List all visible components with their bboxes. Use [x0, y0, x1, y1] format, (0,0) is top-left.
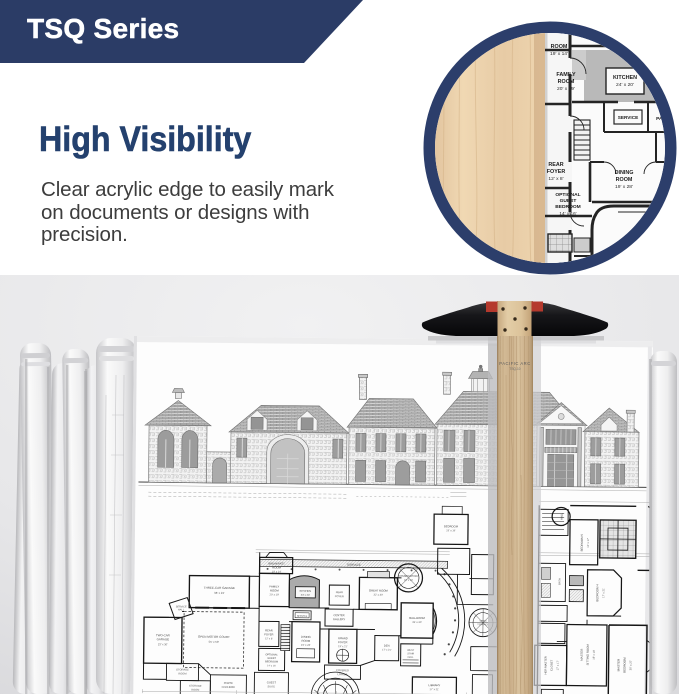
svg-text:FOYER: FOYER	[547, 169, 566, 175]
svg-text:HALL: HALL	[408, 656, 415, 659]
svg-text:19' x 14': 19' x 14'	[550, 51, 568, 57]
svg-text:PORTE: PORTE	[224, 681, 233, 685]
svg-text:TERRACE: TERRACE	[477, 623, 489, 626]
svg-text:BEDROOM: BEDROOM	[555, 204, 581, 210]
svg-text:GREAT ROOM: GREAT ROOM	[369, 588, 389, 592]
svg-text:HER MASTER: HER MASTER	[543, 656, 547, 674]
svg-text:24' x 20': 24' x 20'	[301, 594, 311, 597]
svg-text:FOYER: FOYER	[264, 632, 273, 636]
svg-text:REAR: REAR	[336, 590, 343, 594]
svg-text:MASTER: MASTER	[580, 649, 584, 661]
svg-text:30' x 27': 30' x 27'	[629, 660, 633, 671]
svg-text:55' x 50': 55' x 50'	[209, 640, 220, 644]
svg-text:FOYER: FOYER	[338, 640, 347, 644]
svg-text:14' x 16': 14' x 16'	[267, 664, 276, 667]
svg-text:ROOM: ROOM	[301, 639, 310, 643]
svg-text:ROOM: ROOM	[558, 79, 575, 85]
svg-text:19' x 16': 19' x 16'	[592, 649, 596, 659]
svg-text:KITCHEN: KITCHEN	[300, 589, 312, 593]
svg-text:GALLERY: GALLERY	[333, 617, 346, 621]
svg-text:12' x 8': 12' x 8'	[265, 637, 273, 640]
svg-text:SUITE: SUITE	[267, 684, 275, 688]
svg-text:ROOM: ROOM	[616, 177, 633, 183]
svg-text:REAR: REAR	[265, 628, 273, 632]
svg-text:FAMILY: FAMILY	[556, 72, 576, 78]
svg-text:OPTIONAL: OPTIONAL	[555, 192, 580, 198]
svg-text:TSQ-10: TSQ-10	[509, 367, 520, 371]
svg-text:THREE-CAR GARAGE: THREE-CAR GARAGE	[204, 586, 235, 590]
svg-text:ROOM: ROOM	[272, 565, 281, 569]
svg-text:STORAGE: STORAGE	[189, 684, 202, 688]
svg-text:12' x 8': 12' x 8'	[548, 176, 563, 182]
svg-text:BEDROOM: BEDROOM	[622, 657, 626, 673]
svg-text:BATH: BATH	[557, 578, 561, 585]
svg-text:STORAGE: STORAGE	[176, 667, 189, 671]
svg-text:17' x 21': 17' x 21'	[382, 649, 392, 652]
svg-text:DEN: DEN	[384, 644, 390, 648]
svg-text:17' x 17': 17' x 17'	[556, 660, 560, 670]
svg-text:DINING: DINING	[615, 170, 634, 176]
svg-text:20' x 19': 20' x 19'	[557, 86, 575, 92]
svg-text:SERVICE: SERVICE	[297, 615, 308, 618]
svg-text:OPEN MOTOR COURT: OPEN MOTOR COURT	[198, 635, 230, 639]
svg-text:32' x 30': 32' x 30'	[374, 593, 384, 597]
svg-text:19' x 21': 19' x 21'	[338, 645, 348, 648]
svg-text:ROOM: ROOM	[178, 671, 186, 675]
svg-text:COVERED: COVERED	[336, 668, 349, 672]
svg-text:SITTING ROOM: SITTING ROOM	[586, 644, 590, 666]
svg-text:38' x 23': 38' x 23'	[214, 591, 225, 595]
svg-text:TERRACE: TERRACE	[346, 563, 360, 567]
svg-text:CENTER: CENTER	[334, 613, 345, 617]
svg-text:14' x 17': 14' x 17'	[586, 537, 590, 547]
svg-text:COCHERE: COCHERE	[222, 685, 236, 689]
svg-text:KITCHEN: KITCHEN	[613, 75, 637, 81]
svg-text:PACIFIC ARC: PACIFIC ARC	[499, 361, 530, 366]
svg-text:19' x 28': 19' x 28'	[301, 643, 311, 647]
svg-text:GUEST: GUEST	[267, 680, 277, 684]
svg-text:REAR: REAR	[548, 162, 563, 168]
svg-text:13' x 16': 13' x 16'	[446, 528, 456, 532]
svg-text:GRAND: GRAND	[338, 636, 348, 640]
svg-text:17' x 21': 17' x 21'	[430, 687, 440, 691]
svg-text:GUEST: GUEST	[560, 198, 577, 204]
svg-text:ROOM: ROOM	[191, 688, 199, 692]
svg-text:20' x 19': 20' x 19'	[270, 592, 280, 596]
svg-text:BEDROOM 4: BEDROOM 4	[595, 584, 599, 602]
svg-text:BEDROOM: BEDROOM	[265, 660, 278, 663]
svg-text:24' x 20': 24' x 20'	[616, 82, 634, 88]
svg-text:MASTER: MASTER	[617, 658, 621, 671]
svg-text:ROOM: ROOM	[270, 588, 279, 592]
svg-text:CLOSET: CLOSET	[550, 659, 554, 671]
svg-text:17' x 21': 17' x 21'	[601, 588, 605, 598]
svg-text:19' x 28': 19' x 28'	[615, 184, 633, 190]
svg-text:GARAGE: GARAGE	[157, 637, 169, 641]
svg-text:LIBRARY: LIBRARY	[428, 683, 440, 687]
svg-text:23' x 30': 23' x 30'	[158, 642, 168, 646]
svg-text:36' x 30': 36' x 30'	[412, 620, 422, 624]
svg-text:FOYER: FOYER	[335, 594, 344, 598]
svg-text:BALLROOM: BALLROOM	[409, 616, 425, 620]
svg-text:BEDROOM: BEDROOM	[444, 524, 459, 528]
svg-text:BEDROOM 5: BEDROOM 5	[580, 534, 584, 552]
svg-text:SERVICE: SERVICE	[618, 115, 639, 120]
